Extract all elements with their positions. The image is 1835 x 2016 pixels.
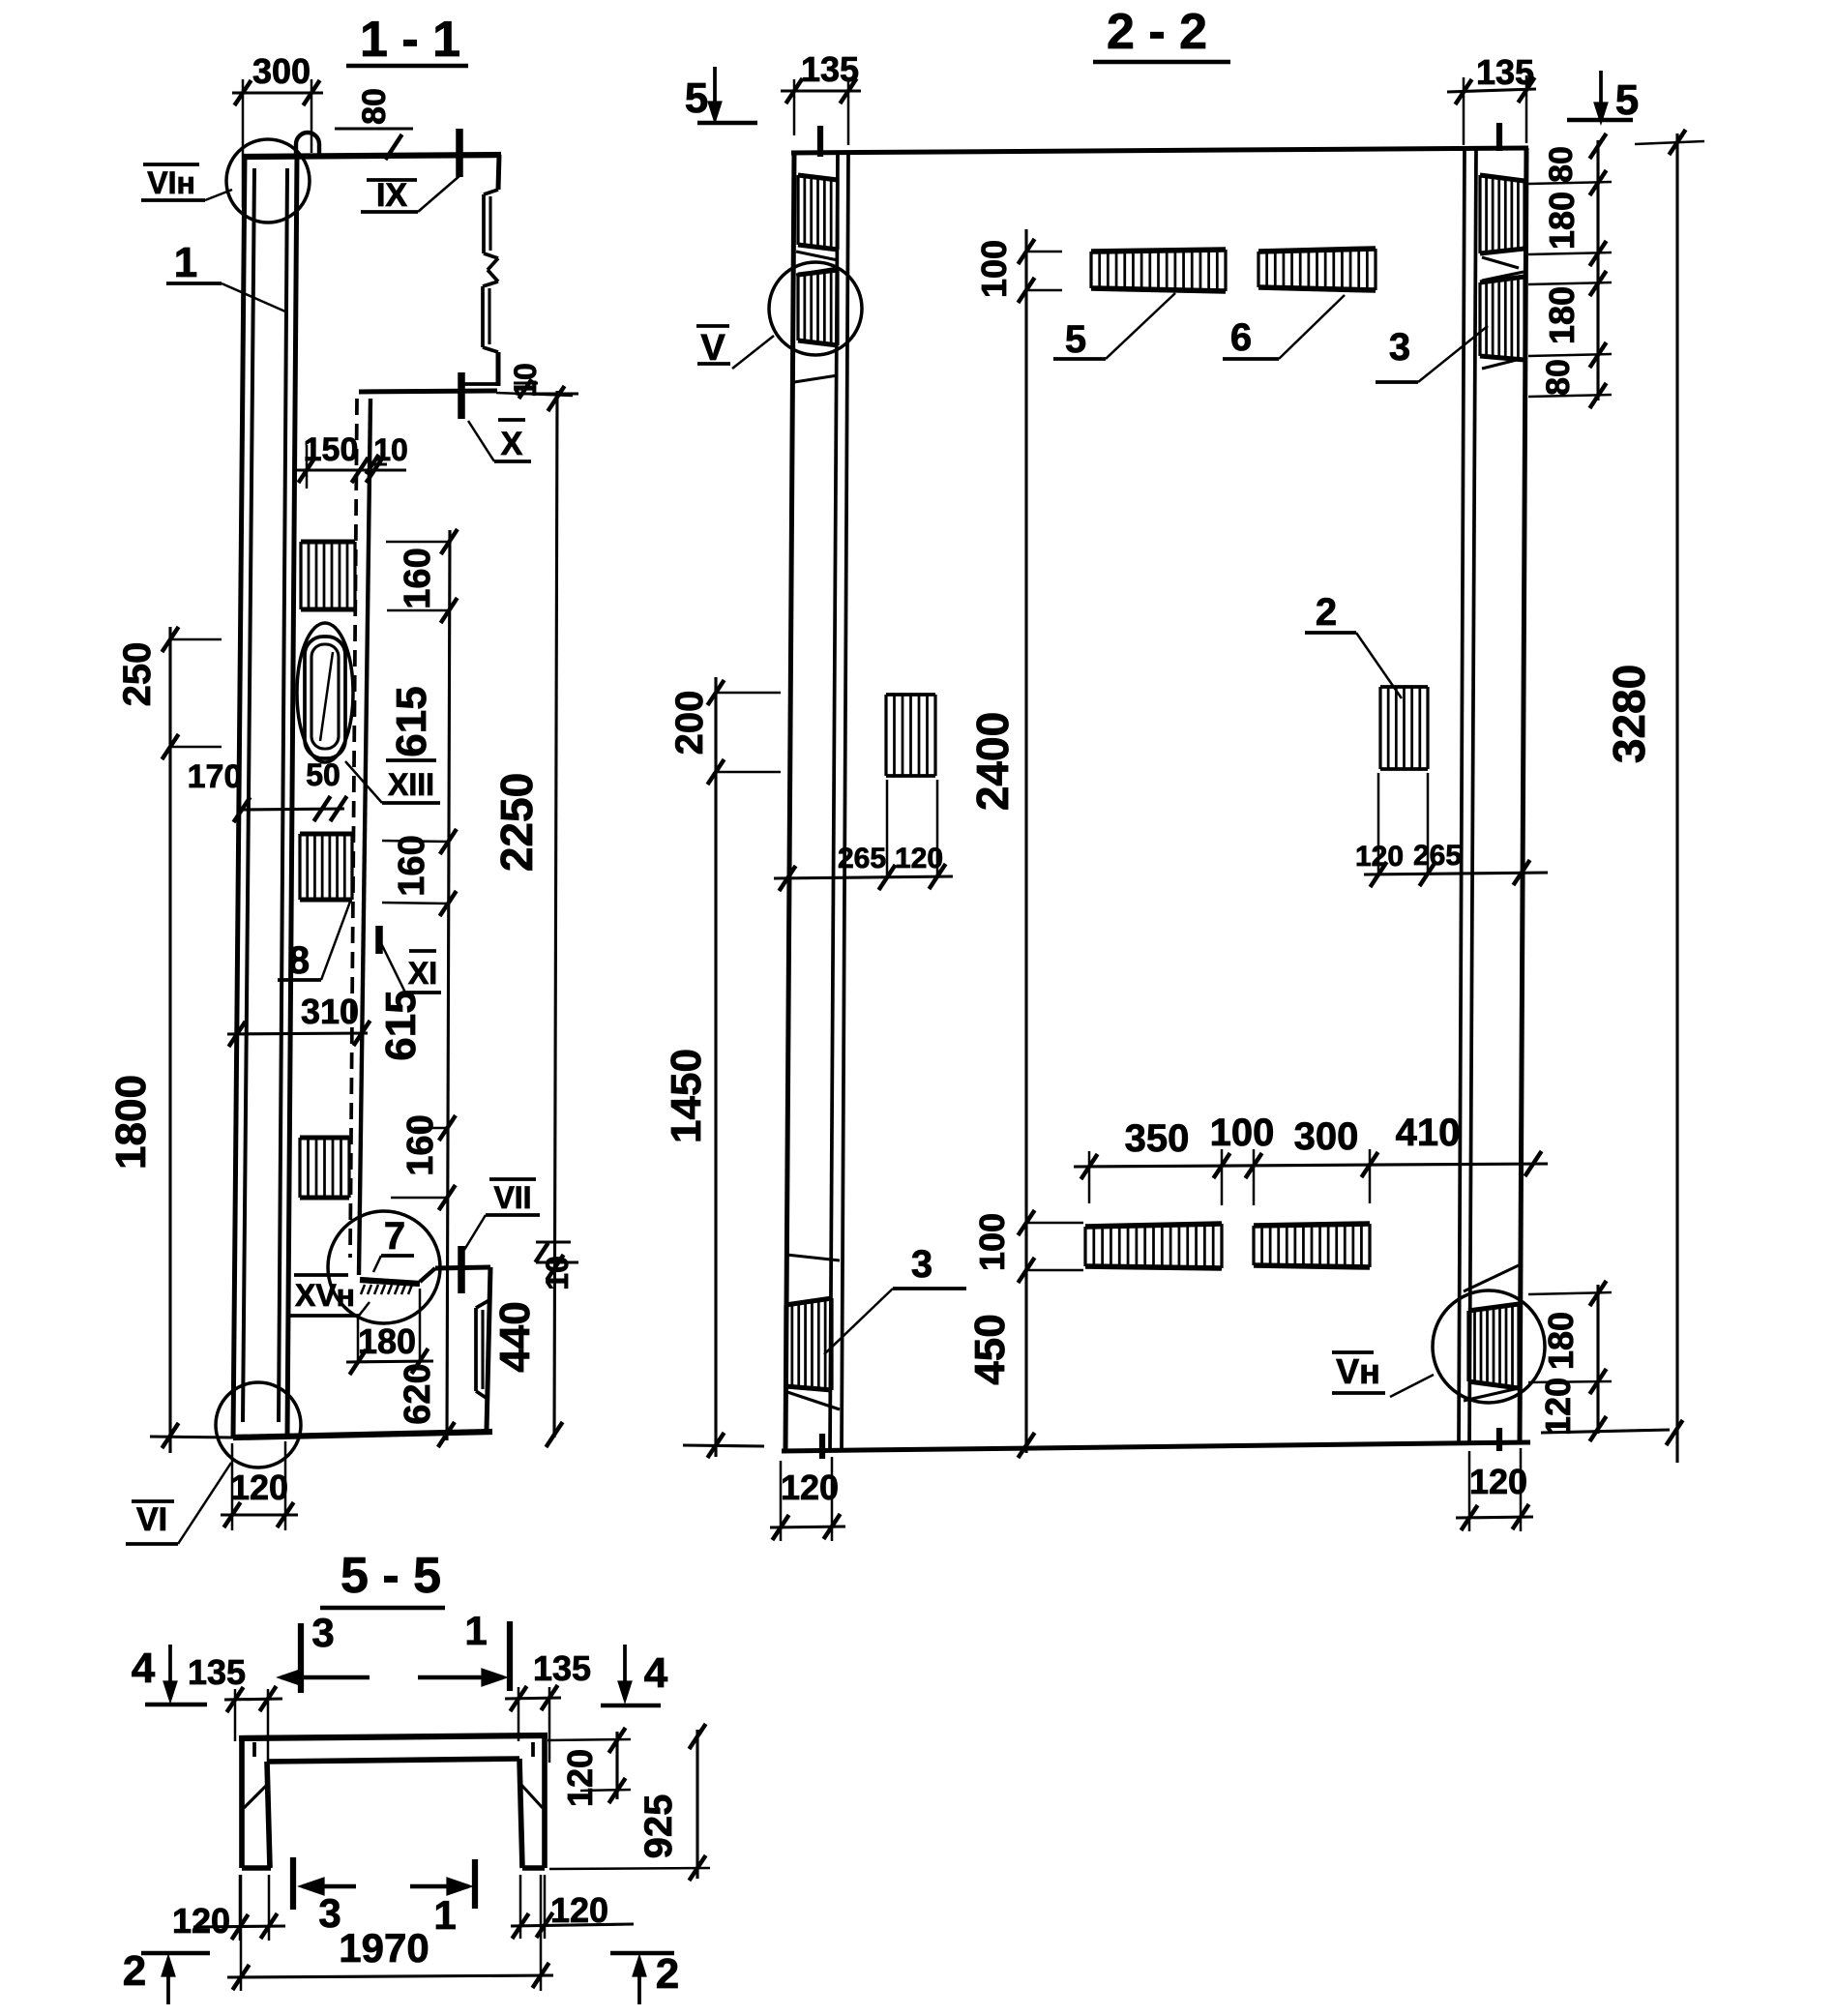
svg-text:80: 80 xyxy=(1540,359,1577,396)
svg-text:180: 180 xyxy=(1542,286,1582,344)
svg-text:160: 160 xyxy=(398,548,438,608)
svg-text:3: 3 xyxy=(311,1610,334,1655)
svg-text:3: 3 xyxy=(911,1243,932,1286)
svg-text:350: 350 xyxy=(1125,1117,1190,1160)
svg-text:170: 170 xyxy=(188,758,243,795)
svg-text:135: 135 xyxy=(533,1648,591,1688)
svg-text:620: 620 xyxy=(398,1363,438,1424)
svg-text:265: 265 xyxy=(838,843,886,875)
svg-text:410: 410 xyxy=(1396,1112,1461,1154)
svg-text:5: 5 xyxy=(685,74,708,122)
svg-text:10: 10 xyxy=(540,1256,575,1290)
svg-text:180: 180 xyxy=(1542,192,1582,250)
svg-text:3: 3 xyxy=(318,1890,340,1936)
svg-text:100: 100 xyxy=(972,1213,1012,1271)
svg-text:100: 100 xyxy=(1210,1112,1275,1154)
svg-text:310: 310 xyxy=(301,992,359,1031)
svg-text:IX: IX xyxy=(376,177,407,214)
svg-text:450: 450 xyxy=(966,1314,1014,1384)
svg-text:1 - 1: 1 - 1 xyxy=(360,12,460,68)
svg-text:200: 200 xyxy=(668,691,711,756)
svg-text:135: 135 xyxy=(188,1652,246,1692)
svg-text:925: 925 xyxy=(637,1794,680,1859)
svg-text:440: 440 xyxy=(491,1301,539,1372)
svg-text:180: 180 xyxy=(1541,1312,1581,1370)
svg-text:120: 120 xyxy=(781,1468,839,1507)
svg-text:4: 4 xyxy=(644,1649,668,1697)
svg-text:1450: 1450 xyxy=(663,1049,710,1143)
svg-text:VI: VI xyxy=(136,1501,167,1538)
svg-text:300: 300 xyxy=(1294,1115,1359,1158)
svg-text:50: 50 xyxy=(306,757,340,792)
svg-text:1970: 1970 xyxy=(339,1925,429,1971)
svg-text:615: 615 xyxy=(377,990,425,1060)
svg-text:1800: 1800 xyxy=(107,1075,155,1170)
svg-text:250: 250 xyxy=(116,642,159,707)
svg-text:120: 120 xyxy=(230,1468,288,1507)
svg-text:3: 3 xyxy=(1389,326,1410,369)
svg-text:160: 160 xyxy=(400,1114,441,1175)
svg-text:120: 120 xyxy=(1469,1462,1527,1501)
svg-text:4: 4 xyxy=(132,1645,156,1692)
svg-text:6: 6 xyxy=(1230,316,1252,359)
svg-text:7: 7 xyxy=(384,1215,405,1258)
svg-text:VIн: VIн xyxy=(147,165,195,200)
svg-text:1: 1 xyxy=(174,239,197,286)
svg-text:180: 180 xyxy=(358,1321,416,1361)
svg-text:2400: 2400 xyxy=(967,712,1018,811)
svg-text:80: 80 xyxy=(1543,146,1580,183)
svg-text:XI: XI xyxy=(408,956,437,991)
svg-text:135: 135 xyxy=(801,49,859,89)
svg-text:5: 5 xyxy=(1065,318,1086,361)
svg-text:120: 120 xyxy=(895,843,943,875)
svg-text:120: 120 xyxy=(172,1901,230,1941)
svg-text:5: 5 xyxy=(1615,76,1639,124)
svg-text:XIII: XIII xyxy=(388,767,434,802)
svg-text:X: X xyxy=(501,426,523,462)
svg-text:8: 8 xyxy=(288,939,310,982)
svg-text:Vн: Vн xyxy=(1336,1351,1380,1391)
svg-text:2 - 2: 2 - 2 xyxy=(1107,4,1207,60)
svg-text:2250: 2250 xyxy=(491,773,542,872)
svg-text:120: 120 xyxy=(1538,1378,1578,1436)
svg-text:80: 80 xyxy=(356,88,393,125)
svg-text:2: 2 xyxy=(656,1950,679,1998)
svg-text:120: 120 xyxy=(560,1749,600,1807)
svg-text:300: 300 xyxy=(252,51,311,91)
svg-text:1: 1 xyxy=(433,1892,456,1938)
svg-text:615: 615 xyxy=(388,686,435,756)
svg-text:2: 2 xyxy=(1316,591,1337,634)
svg-text:265: 265 xyxy=(1413,840,1462,872)
svg-text:5 - 5: 5 - 5 xyxy=(340,1548,441,1604)
svg-text:160: 160 xyxy=(392,835,432,896)
svg-text:100: 100 xyxy=(974,240,1014,298)
svg-text:1: 1 xyxy=(464,1608,487,1653)
svg-text:VII: VII xyxy=(493,1180,531,1215)
svg-text:3280: 3280 xyxy=(1604,665,1654,763)
